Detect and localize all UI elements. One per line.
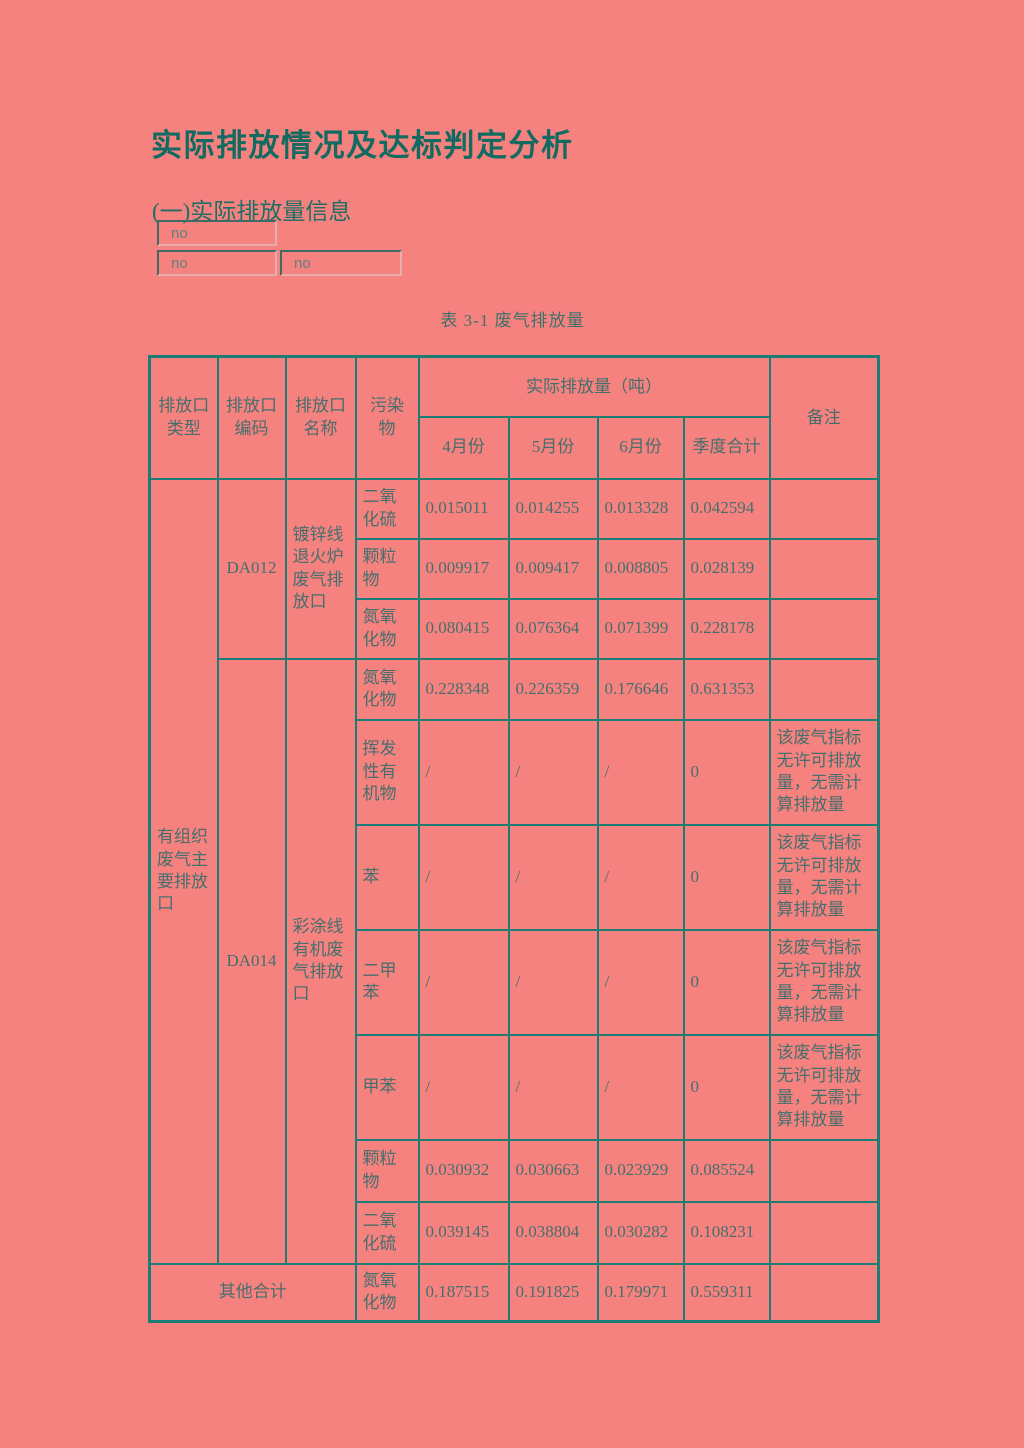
- cell-may: 0.076364: [509, 599, 598, 659]
- cell-remark: [770, 479, 879, 539]
- cell-pollutant: 挥发性有机物: [356, 720, 419, 825]
- cell-pollutant: 二氧化硫: [356, 1202, 419, 1264]
- cell-pollutant: 氮氧化物: [356, 599, 419, 659]
- cell-outlet-name-da014: 彩涂线有机废气排放口: [286, 659, 356, 1264]
- cell-may: 0.191825: [509, 1264, 598, 1322]
- cell-june: /: [598, 825, 684, 930]
- cell-outlet-name-da012: 镀锌线退火炉废气排放口: [286, 479, 356, 659]
- header-actual-emissions: 实际排放量（吨）: [419, 357, 770, 417]
- form-field-1[interactable]: no: [157, 220, 277, 246]
- cell-quarter-total: 0.085524: [684, 1140, 770, 1202]
- cell-may: 0.009417: [509, 539, 598, 599]
- cell-may: 0.226359: [509, 659, 598, 720]
- cell-april: /: [419, 1035, 509, 1140]
- cell-quarter-total: 0.228178: [684, 599, 770, 659]
- cell-pollutant: 颗粒物: [356, 539, 419, 599]
- header-outlet-code: 排放口编码: [218, 357, 286, 479]
- cell-june: 0.071399: [598, 599, 684, 659]
- cell-outlet-type-group: 有组织废气主要排放口: [150, 479, 218, 1264]
- page-background: 实际排放情况及达标判定分析 (一)实际排放量信息 no no no 表 3-1 …: [0, 0, 1024, 1448]
- cell-remark: [770, 659, 879, 720]
- cell-quarter-total: 0.631353: [684, 659, 770, 720]
- cell-june: /: [598, 930, 684, 1035]
- cell-april: 0.009917: [419, 539, 509, 599]
- cell-june: 0.013328: [598, 479, 684, 539]
- cell-quarter-total: 0.028139: [684, 539, 770, 599]
- cell-quarter-total: 0: [684, 930, 770, 1035]
- cell-pollutant: 氮氧化物: [356, 659, 419, 720]
- cell-quarter-total: 0.108231: [684, 1202, 770, 1264]
- cell-april: /: [419, 720, 509, 825]
- header-remark: 备注: [770, 357, 879, 479]
- cell-june: 0.023929: [598, 1140, 684, 1202]
- header-quarter-total: 季度合计: [684, 417, 770, 479]
- cell-may: /: [509, 1035, 598, 1140]
- form-field-3[interactable]: no: [280, 250, 402, 276]
- cell-april: 0.228348: [419, 659, 509, 720]
- cell-june: 0.179971: [598, 1264, 684, 1322]
- table-header-row: 排放口类型 排放口编码 排放口名称 污染物 实际排放量（吨） 备注: [150, 357, 879, 417]
- cell-april: 0.080415: [419, 599, 509, 659]
- header-may: 5月份: [509, 417, 598, 479]
- form-field-2[interactable]: no: [157, 250, 277, 276]
- header-june: 6月份: [598, 417, 684, 479]
- cell-may: /: [509, 930, 598, 1035]
- header-outlet-type: 排放口类型: [150, 357, 218, 479]
- cell-april: 0.030932: [419, 1140, 509, 1202]
- cell-may: 0.014255: [509, 479, 598, 539]
- cell-remark: [770, 1140, 879, 1202]
- cell-quarter-total: 0.559311: [684, 1264, 770, 1322]
- cell-april: 0.015011: [419, 479, 509, 539]
- cell-pollutant: 氮氧化物: [356, 1264, 419, 1322]
- form-field-1-value: no: [171, 225, 188, 242]
- cell-quarter-total: 0: [684, 825, 770, 930]
- cell-pollutant: 二甲苯: [356, 930, 419, 1035]
- cell-remark: 该废气指标无许可排放量，无需计算排放量: [770, 1035, 879, 1140]
- cell-quarter-total: 0: [684, 1035, 770, 1140]
- header-april: 4月份: [419, 417, 509, 479]
- cell-other-total-label: 其他合计: [150, 1264, 356, 1322]
- header-pollutant: 污染物: [356, 357, 419, 479]
- cell-april: 0.187515: [419, 1264, 509, 1322]
- table-row: 有组织废气主要排放口 DA012 镀锌线退火炉废气排放口 二氧化硫 0.0150…: [150, 479, 879, 539]
- cell-june: 0.008805: [598, 539, 684, 599]
- cell-remark: 该废气指标无许可排放量，无需计算排放量: [770, 720, 879, 825]
- cell-april: /: [419, 930, 509, 1035]
- table-row-other-total: 其他合计 氮氧化物 0.187515 0.191825 0.179971 0.5…: [150, 1264, 879, 1322]
- emissions-table: 排放口类型 排放口编码 排放口名称 污染物 实际排放量（吨） 备注 4月份 5月…: [148, 355, 880, 1323]
- cell-remark: [770, 1202, 879, 1264]
- cell-june: 0.030282: [598, 1202, 684, 1264]
- cell-remark: [770, 1264, 879, 1322]
- cell-june: 0.176646: [598, 659, 684, 720]
- cell-may: /: [509, 720, 598, 825]
- table-caption: 表 3-1 废气排放量: [148, 306, 877, 331]
- cell-pollutant: 颗粒物: [356, 1140, 419, 1202]
- cell-outlet-code-da014: DA014: [218, 659, 286, 1264]
- header-outlet-name: 排放口名称: [286, 357, 356, 479]
- form-field-2-value: no: [171, 255, 188, 272]
- cell-may: 0.030663: [509, 1140, 598, 1202]
- cell-outlet-code-da012: DA012: [218, 479, 286, 659]
- cell-april: /: [419, 825, 509, 930]
- cell-remark: 该废气指标无许可排放量，无需计算排放量: [770, 825, 879, 930]
- table-row: DA014 彩涂线有机废气排放口 氮氧化物 0.228348 0.226359 …: [150, 659, 879, 720]
- cell-june: /: [598, 1035, 684, 1140]
- cell-june: /: [598, 720, 684, 825]
- cell-may: /: [509, 825, 598, 930]
- cell-quarter-total: 0: [684, 720, 770, 825]
- cell-pollutant: 二氧化硫: [356, 479, 419, 539]
- page-title: 实际排放情况及达标判定分析: [151, 120, 574, 165]
- cell-may: 0.038804: [509, 1202, 598, 1264]
- form-field-3-value: no: [294, 255, 311, 272]
- cell-pollutant: 苯: [356, 825, 419, 930]
- cell-remark: [770, 539, 879, 599]
- cell-quarter-total: 0.042594: [684, 479, 770, 539]
- cell-pollutant: 甲苯: [356, 1035, 419, 1140]
- cell-april: 0.039145: [419, 1202, 509, 1264]
- cell-remark: 该废气指标无许可排放量，无需计算排放量: [770, 930, 879, 1035]
- cell-remark: [770, 599, 879, 659]
